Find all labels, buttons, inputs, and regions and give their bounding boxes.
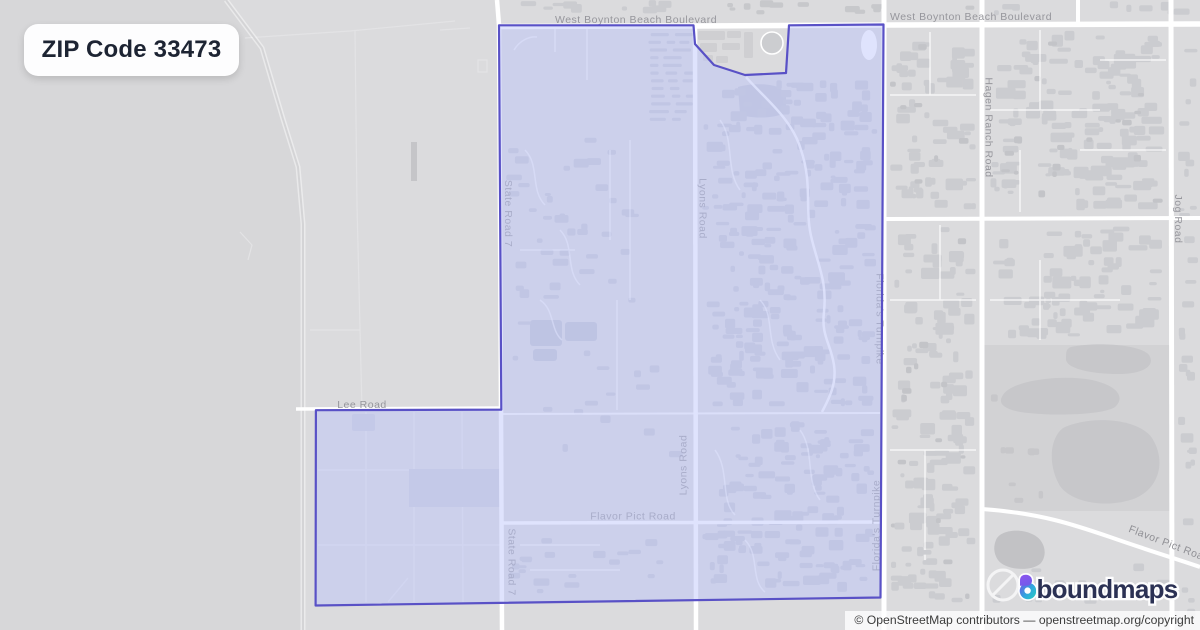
svg-text:boundmaps: boundmaps — [1037, 574, 1178, 604]
svg-text:Jog Road: Jog Road — [1172, 195, 1184, 244]
svg-text:Hagen Ranch Road: Hagen Ranch Road — [983, 77, 995, 177]
svg-text:West Boynton Beach Boulevard: West Boynton Beach Boulevard — [890, 11, 1052, 23]
